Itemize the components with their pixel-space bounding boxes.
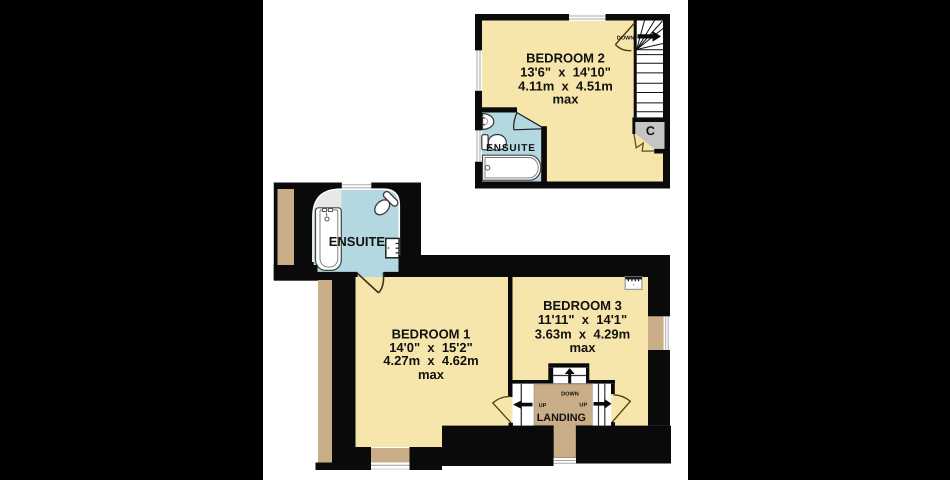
svg-text:4.27m x 4.62m: 4.27m x 4.62m	[383, 353, 478, 368]
svg-text:LANDING: LANDING	[537, 412, 586, 424]
svg-text:DOWN: DOWN	[561, 391, 579, 397]
svg-text:max: max	[552, 92, 579, 107]
svg-text:BEDROOM 3: BEDROOM 3	[543, 298, 622, 313]
svg-text:max: max	[418, 367, 445, 382]
svg-text:DOWN: DOWN	[617, 36, 634, 42]
svg-text:ENSUITE: ENSUITE	[329, 234, 386, 249]
svg-text:UP: UP	[579, 402, 587, 408]
svg-text:C: C	[646, 124, 655, 138]
svg-text:UP: UP	[539, 403, 547, 409]
svg-text:13'6" x 14'10": 13'6" x 14'10"	[520, 65, 611, 80]
svg-text:BEDROOM 2: BEDROOM 2	[526, 51, 605, 66]
svg-text:11'11" x 14'1": 11'11" x 14'1"	[538, 312, 627, 327]
svg-text:max: max	[569, 340, 596, 355]
svg-text:ENSUITE: ENSUITE	[486, 143, 536, 154]
